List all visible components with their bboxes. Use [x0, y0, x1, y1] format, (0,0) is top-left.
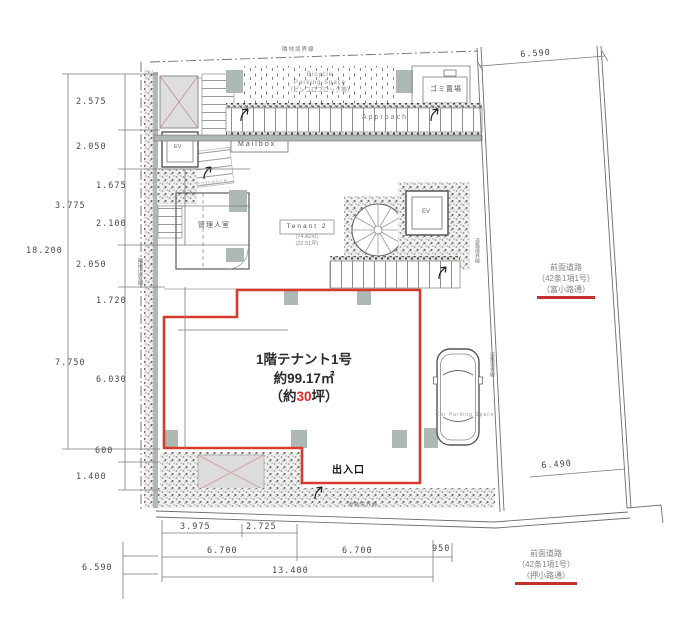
building-top-wall	[154, 135, 482, 141]
road-bottom-line3: （押小路通）	[498, 571, 594, 582]
ev-left-label: EV	[174, 145, 181, 151]
approach-label: Approach	[362, 114, 408, 121]
dim-left-11: 1.400	[76, 472, 107, 482]
bicycle-line1: Bicycle	[270, 72, 370, 78]
road-boundary-label-right-upper: 道路境界線	[474, 238, 479, 263]
car-parking-label: Car Parking Space	[430, 413, 500, 418]
dim-left-2: 2.050	[76, 142, 107, 152]
road-right-line1: 前面道路	[518, 263, 614, 274]
dim-left-total: 18.200	[26, 246, 63, 256]
tenant1-label: 1階テナント1号 約99.17㎡ （約30坪）	[225, 351, 383, 407]
dim-left-9: 6.030	[96, 375, 127, 385]
tenant1-area: 約99.17㎡	[225, 370, 383, 389]
road-bottom-line1: 前面道路	[498, 549, 594, 560]
ev-right-label: EV	[422, 209, 430, 215]
dim-left-10: 600	[95, 446, 113, 456]
exit-label: 出入口	[332, 461, 365, 476]
bicycle-parking-label: Bicycle Parking Space （ピンコロブロック等）	[270, 72, 370, 94]
garbage-label: ゴミ置場	[430, 86, 462, 93]
road-boundary-label-right-lower: 道路境界線	[489, 352, 494, 377]
road-label-bottom: 前面道路 （42条1項1号） （押小路通）	[498, 549, 594, 585]
road-lines-bottom	[156, 511, 630, 528]
dim-left-8: 7.750	[55, 358, 86, 368]
dim-left-3: 1.675	[96, 181, 127, 191]
road-right-underline	[537, 296, 595, 299]
planting-strip-bottom	[158, 452, 495, 508]
dim-right-side: 6.490	[541, 459, 572, 471]
floor-plan-page: 隣地境界線 隣地境界線 道路境界線 道路境界線 道路境界線 Bicycle Pa…	[0, 0, 688, 618]
dim-left-6: 2.050	[76, 260, 107, 270]
dim-bottom-4: 6.700	[342, 546, 373, 556]
mailbox-label: Mailbox	[238, 141, 276, 148]
dim-left-1: 2.575	[76, 97, 107, 107]
dim-left-4: 3.775	[55, 201, 86, 211]
dim-bottom-5: 950	[432, 544, 450, 554]
dim-left-5: 2.100	[96, 219, 127, 229]
dim-top-right: 6.590	[520, 48, 551, 60]
road-boundary-label-bottom: 道路境界線	[348, 503, 378, 508]
car-icon	[434, 349, 483, 445]
road-bottom-underline	[515, 582, 577, 585]
bicycle-line2: Parking Space	[270, 80, 370, 86]
planting-strip-left	[144, 70, 153, 508]
tenant1-tsubo: （約30坪）	[225, 388, 383, 407]
dim-bottom-3: 6.700	[207, 546, 238, 556]
dim-bottom-total: 13.400	[272, 566, 309, 576]
tenant2-label: Tenant 2 (74.42㎡) (22.51坪)	[278, 221, 336, 248]
dim-bottom-1: 3.975	[180, 522, 211, 532]
wall-block	[396, 70, 413, 93]
manager-room-label: 管理人室	[198, 222, 230, 229]
road-right-line2: （42条1項1号）	[518, 274, 614, 285]
wall-block	[226, 70, 243, 93]
approach-walkway	[226, 103, 482, 137]
bicycle-line3: （ピンコロブロック等）	[270, 88, 370, 94]
road-right-line3: （富小路通）	[518, 285, 614, 296]
tenant2-tsubo: (22.51坪)	[278, 241, 336, 248]
boundary-label-left: 隣地境界線	[136, 258, 142, 286]
tenant1-tsubo-number: 30	[296, 389, 311, 404]
road-bottom-line2: （42条1項1号）	[498, 560, 594, 571]
dim-left-7: 1.720	[96, 296, 127, 306]
tenant1-title: 1階テナント1号	[225, 351, 383, 370]
planting-left-ev	[157, 168, 197, 204]
boundary-label-top: 隣地境界線	[282, 48, 315, 54]
road-label-right: 前面道路 （42条1項1号） （富小路通）	[518, 263, 614, 299]
tenant2-name: Tenant 2	[278, 221, 336, 230]
dim-bottom-left-road: 6.590	[82, 563, 113, 573]
tenant2-area: (74.42㎡)	[278, 234, 336, 241]
stairs-mid-left	[158, 206, 182, 238]
dim-bottom-2: 2.725	[246, 522, 277, 532]
